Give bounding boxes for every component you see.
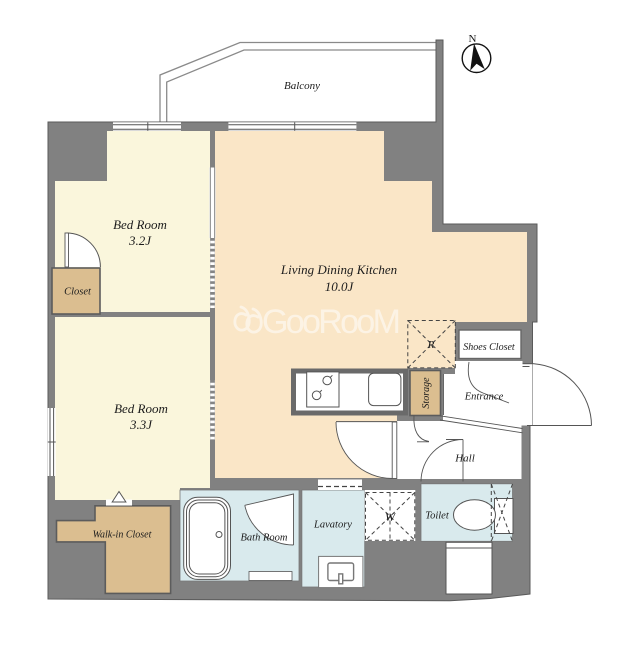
svg-text:Bed Room: Bed Room (114, 401, 168, 416)
svg-text:Balcony: Balcony (284, 80, 320, 92)
svg-text:Hall: Hall (454, 453, 475, 465)
svg-text:Bed Room: Bed Room (113, 217, 167, 232)
svg-text:10.0J: 10.0J (325, 279, 355, 294)
svg-text:Bath Room: Bath Room (241, 533, 288, 544)
svg-text:Closet: Closet (64, 287, 92, 298)
svg-text:N: N (469, 33, 477, 45)
svg-text:Entrance: Entrance (464, 392, 504, 403)
svg-text:Lavatory: Lavatory (313, 520, 352, 531)
svg-text:Storage: Storage (421, 377, 432, 409)
svg-text:3.3J: 3.3J (129, 417, 153, 432)
svg-text:W: W (385, 510, 396, 524)
svg-text:R: R (427, 339, 435, 351)
svg-text:GooRooM: GooRooM (262, 303, 401, 341)
svg-text:3.2J: 3.2J (128, 233, 152, 248)
svg-text:Shoes Closet: Shoes Closet (463, 342, 515, 353)
svg-text:Walk-in Closet: Walk-in Closet (93, 530, 152, 541)
svg-text:Toilet: Toilet (425, 511, 450, 522)
svg-text:Living Dining Kitchen: Living Dining Kitchen (280, 262, 397, 277)
